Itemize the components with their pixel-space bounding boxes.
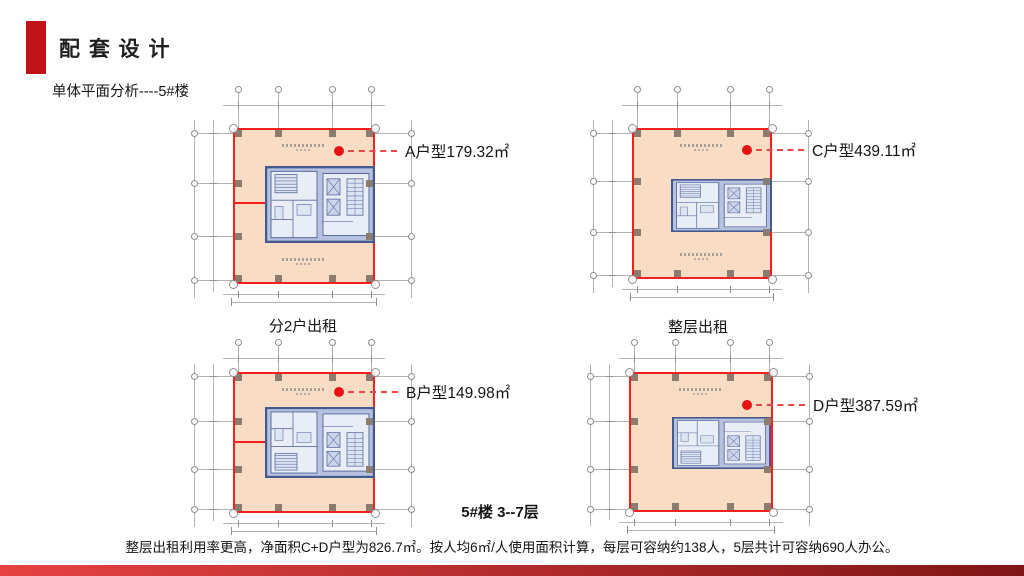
grid-line [375, 236, 411, 237]
grid-bubble [768, 275, 777, 284]
floor-note-marks [679, 388, 723, 391]
dim-tick [210, 469, 217, 470]
dim-tick [774, 526, 775, 534]
grid-bubble [408, 418, 415, 425]
grid-line [637, 92, 638, 128]
floor-note-marks [694, 149, 710, 151]
grid-bubble [590, 229, 597, 236]
dim-tick [769, 519, 770, 526]
column-marker [634, 178, 641, 185]
unit-dot [742, 145, 752, 155]
core-plan [672, 417, 771, 469]
grid-line [278, 92, 279, 128]
grid-bubble [229, 280, 238, 289]
dim-tick [210, 236, 217, 237]
grid-line [730, 92, 731, 128]
dim-tick [332, 520, 333, 527]
dim-line [223, 523, 385, 524]
column-marker [275, 374, 282, 381]
grid-line [375, 280, 411, 281]
unit-leader [756, 404, 805, 406]
grid-bubble [408, 130, 415, 137]
grid-bubble [191, 373, 198, 380]
grid-line [769, 92, 770, 128]
dim-line [223, 105, 385, 106]
dim-line [213, 120, 214, 292]
grid-line [808, 120, 809, 293]
dim-tick [630, 293, 631, 301]
grid-bubble [408, 277, 415, 284]
column-marker [275, 275, 282, 282]
plan-layer: A户型179.32㎡C户型439.11㎡B户型149.98㎡D户型387.59㎡… [0, 0, 1024, 576]
column-marker [727, 130, 734, 137]
dim-tick [730, 286, 731, 293]
grid-bubble [191, 277, 198, 284]
grid-bubble [229, 124, 238, 133]
column-marker [275, 504, 282, 511]
unit-leader [756, 149, 804, 151]
unit-dot [742, 400, 752, 410]
grid-line [773, 509, 809, 510]
grid-bubble [408, 466, 415, 473]
core-plan [671, 179, 772, 232]
grid-bubble [674, 86, 681, 93]
dim-tick [609, 181, 616, 182]
grid-line [371, 92, 372, 128]
dim-line [622, 289, 782, 290]
grid-line [809, 364, 810, 526]
grid-bubble [590, 130, 597, 137]
grid-bubble [805, 229, 812, 236]
grid-bubble [806, 373, 813, 380]
grid-bubble [769, 508, 778, 517]
grid-bubble [587, 418, 594, 425]
floor-note-marks [282, 258, 326, 261]
dim-tick [609, 133, 616, 134]
grid-bubble [806, 418, 813, 425]
grid-line [772, 133, 808, 134]
grid-bubble [235, 86, 242, 93]
grid-bubble [590, 178, 597, 185]
grid-bubble [368, 339, 375, 346]
grid-line [375, 183, 411, 184]
grid-line [332, 92, 333, 128]
dim-tick [210, 421, 217, 422]
column-marker [329, 374, 336, 381]
column-marker [366, 233, 373, 240]
column-marker [727, 374, 734, 381]
dim-tick [730, 102, 731, 109]
grid-bubble [408, 373, 415, 380]
dim-line [627, 530, 775, 531]
column-marker [366, 180, 373, 187]
dim-tick [231, 527, 232, 535]
dim-line [231, 531, 377, 532]
dim-line [223, 294, 385, 295]
column-marker [329, 130, 336, 137]
grid-bubble [191, 180, 198, 187]
grid-line [773, 469, 809, 470]
dim-tick [238, 291, 239, 298]
unit-label: A户型179.32㎡ [405, 140, 509, 162]
grid-bubble [191, 418, 198, 425]
column-marker [763, 178, 770, 185]
grid-line [773, 376, 809, 377]
column-marker [329, 275, 336, 282]
dim-tick [730, 519, 731, 526]
grid-bubble [769, 368, 778, 377]
dim-tick [376, 298, 377, 306]
dim-tick [210, 280, 217, 281]
dim-tick [637, 286, 638, 293]
dim-tick [637, 102, 638, 109]
floor-note-marks [694, 258, 710, 260]
dim-tick [238, 355, 239, 362]
grid-line [375, 133, 411, 134]
grid-bubble [408, 506, 415, 513]
grid-bubble [408, 233, 415, 240]
dim-tick [609, 232, 616, 233]
column-marker [235, 418, 242, 425]
grid-bubble [235, 339, 242, 346]
grid-line [593, 120, 594, 293]
dim-tick [278, 102, 279, 109]
unit-dot [334, 387, 344, 397]
grid-line [375, 509, 411, 510]
grid-bubble [625, 508, 634, 517]
dim-tick [210, 509, 217, 510]
unit-divider [235, 441, 265, 443]
dim-line [609, 364, 610, 520]
dim-tick [627, 526, 628, 534]
column-marker [631, 418, 638, 425]
grid-bubble [275, 86, 282, 93]
grid-bubble [727, 86, 734, 93]
grid-line [194, 120, 195, 298]
unit-leader [348, 391, 398, 393]
grid-bubble [727, 339, 734, 346]
grid-bubble [329, 339, 336, 346]
dim-tick [606, 421, 613, 422]
dim-line [619, 358, 783, 359]
dim-tick [332, 102, 333, 109]
grid-line [375, 469, 411, 470]
grid-line [375, 376, 411, 377]
dim-tick [769, 102, 770, 109]
grid-bubble [628, 275, 637, 284]
dim-tick [609, 275, 616, 276]
dim-tick [210, 376, 217, 377]
dim-tick [376, 527, 377, 535]
floor-range-label: 5#楼 3--7层 [461, 501, 539, 522]
unit-label: D户型387.59㎡ [813, 394, 918, 416]
column-marker [275, 130, 282, 137]
dim-line [630, 297, 774, 298]
grid-bubble [587, 466, 594, 473]
core-plan [265, 166, 375, 243]
grid-bubble [590, 272, 597, 279]
column-marker [235, 233, 242, 240]
dim-tick [278, 520, 279, 527]
column-marker [235, 466, 242, 473]
dim-line [213, 364, 214, 521]
rental-caption: 整层出租 [668, 316, 728, 337]
dim-tick [634, 355, 635, 362]
grid-bubble [329, 86, 336, 93]
column-marker [329, 504, 336, 511]
grid-bubble [768, 124, 777, 133]
grid-bubble [371, 280, 380, 289]
column-marker [366, 466, 373, 473]
core-plan [265, 407, 375, 478]
column-marker [674, 130, 681, 137]
column-marker [672, 374, 679, 381]
dim-tick [371, 520, 372, 527]
dim-tick [231, 298, 232, 306]
dim-tick [332, 355, 333, 362]
floor-note-marks [680, 144, 724, 147]
unit-label: C户型439.11㎡ [812, 139, 916, 161]
dim-tick [606, 469, 613, 470]
dim-tick [675, 355, 676, 362]
column-marker [235, 180, 242, 187]
grid-bubble [229, 368, 238, 377]
dim-tick [606, 509, 613, 510]
floor-note-marks [296, 393, 312, 395]
footer-note: 整层出租利用率更高，净面积C+D户型为826.7㎡。按人均6㎡/人使用面积计算，… [0, 536, 1024, 556]
grid-bubble [408, 180, 415, 187]
dim-tick [278, 291, 279, 298]
dim-tick [675, 519, 676, 526]
column-marker [366, 418, 373, 425]
grid-line [677, 92, 678, 128]
dim-tick [238, 102, 239, 109]
unit-divider [235, 202, 265, 204]
grid-line [375, 421, 411, 422]
grid-bubble [191, 506, 198, 513]
column-marker [764, 418, 771, 425]
grid-bubble [766, 86, 773, 93]
grid-line [238, 92, 239, 128]
grid-line [772, 275, 808, 276]
grid-line [772, 232, 808, 233]
bottom-bar [0, 565, 1024, 576]
grid-bubble [191, 466, 198, 473]
grid-bubble [805, 130, 812, 137]
column-marker [763, 229, 770, 236]
unit-label: B户型149.98㎡ [406, 381, 510, 403]
unit-leader [348, 150, 397, 152]
dim-tick [730, 355, 731, 362]
dim-tick [210, 133, 217, 134]
column-marker [727, 503, 734, 510]
dim-tick [371, 355, 372, 362]
floor-note-marks [282, 144, 326, 147]
grid-bubble [628, 124, 637, 133]
grid-bubble [806, 466, 813, 473]
floor-note-marks [282, 388, 326, 391]
unit-dot [334, 146, 344, 156]
grid-bubble [587, 506, 594, 513]
dim-tick [371, 102, 372, 109]
dim-line [231, 302, 377, 303]
dim-tick [769, 286, 770, 293]
dim-tick [677, 286, 678, 293]
grid-bubble [631, 339, 638, 346]
grid-line [773, 421, 809, 422]
dim-line [612, 120, 613, 287]
grid-bubble [371, 368, 380, 377]
dim-tick [677, 102, 678, 109]
grid-bubble [371, 124, 380, 133]
grid-line [772, 181, 808, 182]
dim-line [619, 522, 783, 523]
grid-bubble [275, 339, 282, 346]
grid-bubble [191, 233, 198, 240]
dim-tick [606, 376, 613, 377]
column-marker [674, 270, 681, 277]
floor-note-marks [296, 263, 312, 265]
dim-tick [210, 183, 217, 184]
grid-bubble [805, 178, 812, 185]
grid-bubble [229, 509, 238, 518]
dim-tick [238, 520, 239, 527]
grid-bubble [625, 368, 634, 377]
grid-bubble [672, 339, 679, 346]
dim-tick [278, 355, 279, 362]
column-marker [634, 229, 641, 236]
dim-tick [773, 293, 774, 301]
slide: 配 套 设 计 单体平面分析----5#楼 A户型179.32㎡C户型439.1… [0, 0, 1024, 576]
grid-bubble [371, 509, 380, 518]
grid-bubble [587, 373, 594, 380]
grid-bubble [368, 86, 375, 93]
grid-bubble [806, 506, 813, 513]
column-marker [727, 270, 734, 277]
dim-line [622, 105, 782, 106]
dim-tick [634, 519, 635, 526]
rental-caption: 分2户出租 [269, 315, 337, 336]
column-marker [764, 466, 771, 473]
grid-bubble [191, 130, 198, 137]
column-marker [631, 466, 638, 473]
grid-bubble [634, 86, 641, 93]
column-marker [672, 503, 679, 510]
dim-tick [769, 355, 770, 362]
floor-note-marks [296, 149, 312, 151]
dim-tick [332, 291, 333, 298]
floor-note-marks [680, 253, 724, 256]
grid-bubble [805, 272, 812, 279]
grid-line [194, 364, 195, 527]
dim-tick [371, 291, 372, 298]
grid-line [590, 364, 591, 526]
floor-note-marks [693, 393, 709, 395]
grid-bubble [766, 339, 773, 346]
dim-line [223, 358, 385, 359]
